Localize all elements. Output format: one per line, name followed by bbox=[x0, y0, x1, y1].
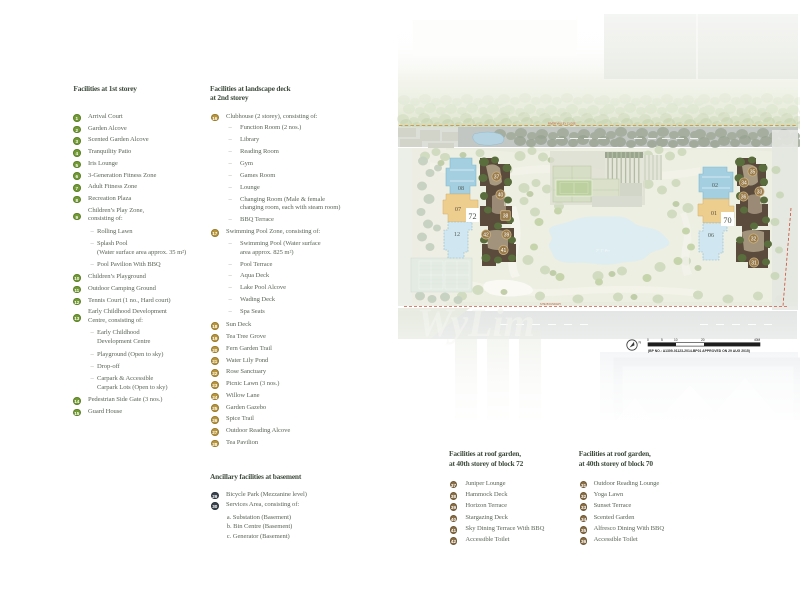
svg-text:39: 39 bbox=[504, 233, 510, 239]
svg-text:07: 07 bbox=[455, 206, 461, 213]
svg-text:41: 41 bbox=[501, 248, 507, 254]
svg-text:08: 08 bbox=[458, 185, 464, 192]
svg-text:35: 35 bbox=[750, 170, 756, 176]
svg-text:31: 31 bbox=[751, 261, 757, 267]
svg-text:06: 06 bbox=[708, 232, 714, 239]
svg-text:7° 7° P››: 7° 7° P›› bbox=[596, 249, 610, 253]
svg-text:38: 38 bbox=[503, 214, 509, 220]
svg-text:33: 33 bbox=[757, 190, 763, 196]
svg-text:40: 40 bbox=[498, 193, 504, 199]
svg-text:12: 12 bbox=[454, 231, 460, 238]
svg-text:32: 32 bbox=[751, 237, 757, 243]
svg-text:42: 42 bbox=[483, 233, 489, 239]
svg-text:37: 37 bbox=[494, 175, 500, 181]
svg-text:36: 36 bbox=[741, 195, 747, 201]
svg-text:0: 0 bbox=[647, 338, 649, 342]
svg-text:N: N bbox=[639, 341, 642, 345]
svg-text:72: 72 bbox=[468, 212, 476, 221]
svg-text:40M: 40M bbox=[754, 338, 761, 342]
svg-text:(BP NO.: A1309-01123-2014-BP01: (BP NO.: A1309-01123-2014-BP01 APPROVED … bbox=[648, 349, 750, 353]
svg-text:20: 20 bbox=[701, 338, 705, 342]
svg-text:RIVER VALLEY CLOSE: RIVER VALLEY CLOSE bbox=[548, 121, 576, 125]
svg-text:02: 02 bbox=[712, 182, 718, 189]
svg-text:10: 10 bbox=[674, 338, 678, 342]
svg-text:34: 34 bbox=[741, 181, 747, 187]
svg-text:5: 5 bbox=[661, 338, 663, 342]
svg-text:70: 70 bbox=[723, 216, 731, 225]
svg-text:01: 01 bbox=[711, 210, 717, 217]
